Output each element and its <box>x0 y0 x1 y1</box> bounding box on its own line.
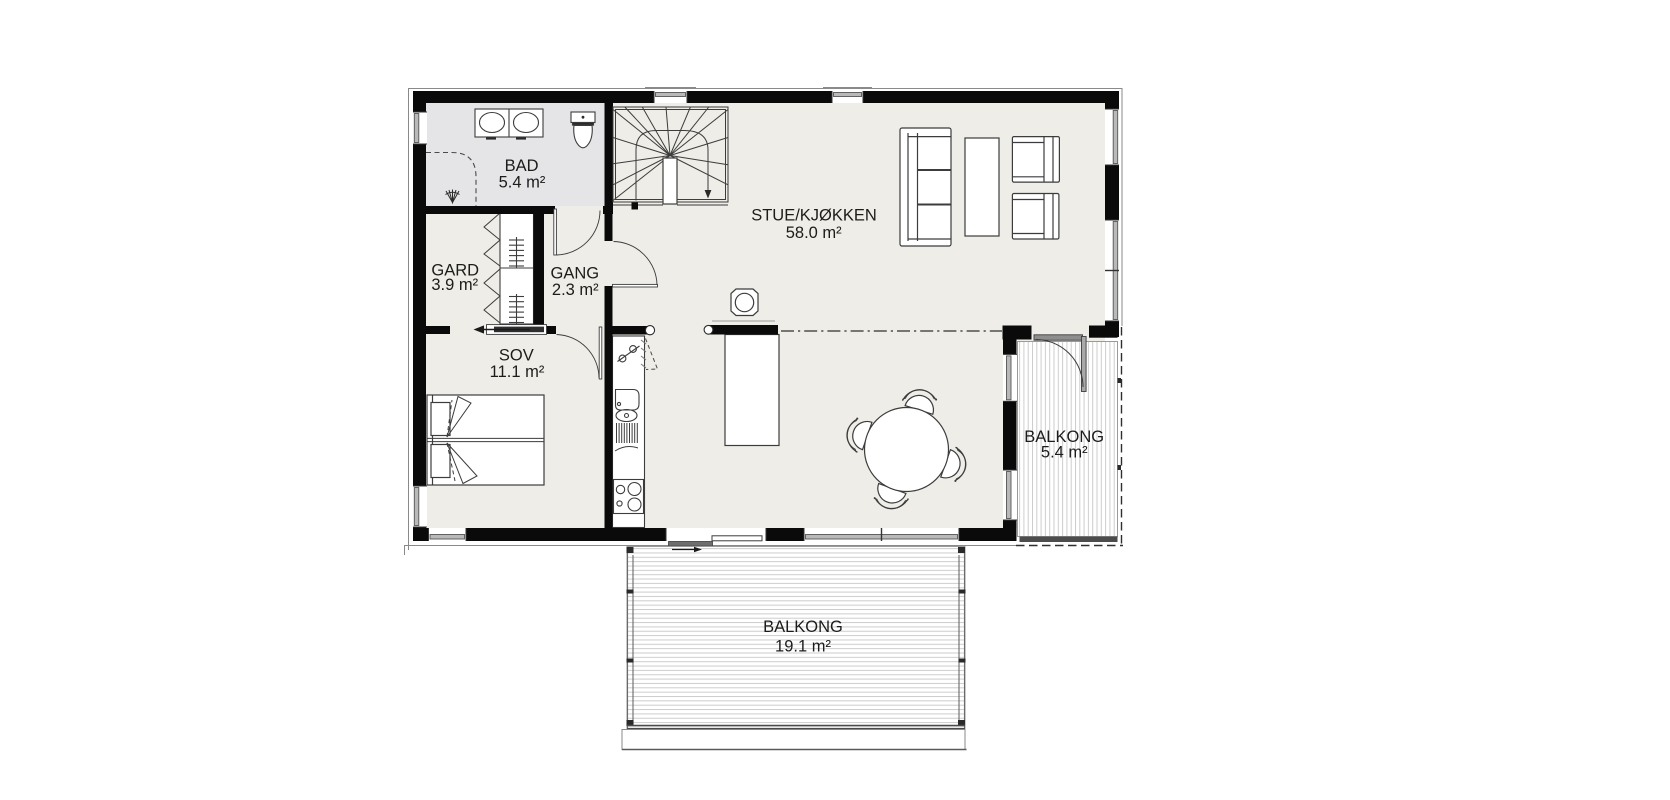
svg-text:58.0 m²: 58.0 m² <box>786 224 842 242</box>
svg-text:SOV: SOV <box>499 347 534 365</box>
svg-text:5.4 m²: 5.4 m² <box>499 174 546 192</box>
svg-text:BALKONG: BALKONG <box>763 618 843 636</box>
svg-text:STUE/KJØKKEN: STUE/KJØKKEN <box>751 206 877 224</box>
svg-text:BAD: BAD <box>505 157 539 175</box>
svg-text:GANG: GANG <box>551 264 600 282</box>
svg-text:2.3 m²: 2.3 m² <box>552 281 599 299</box>
svg-text:3.9 m²: 3.9 m² <box>431 276 478 294</box>
svg-text:19.1 m²: 19.1 m² <box>775 637 831 655</box>
svg-text:5.4 m²: 5.4 m² <box>1041 444 1088 462</box>
svg-text:11.1 m²: 11.1 m² <box>490 363 545 381</box>
